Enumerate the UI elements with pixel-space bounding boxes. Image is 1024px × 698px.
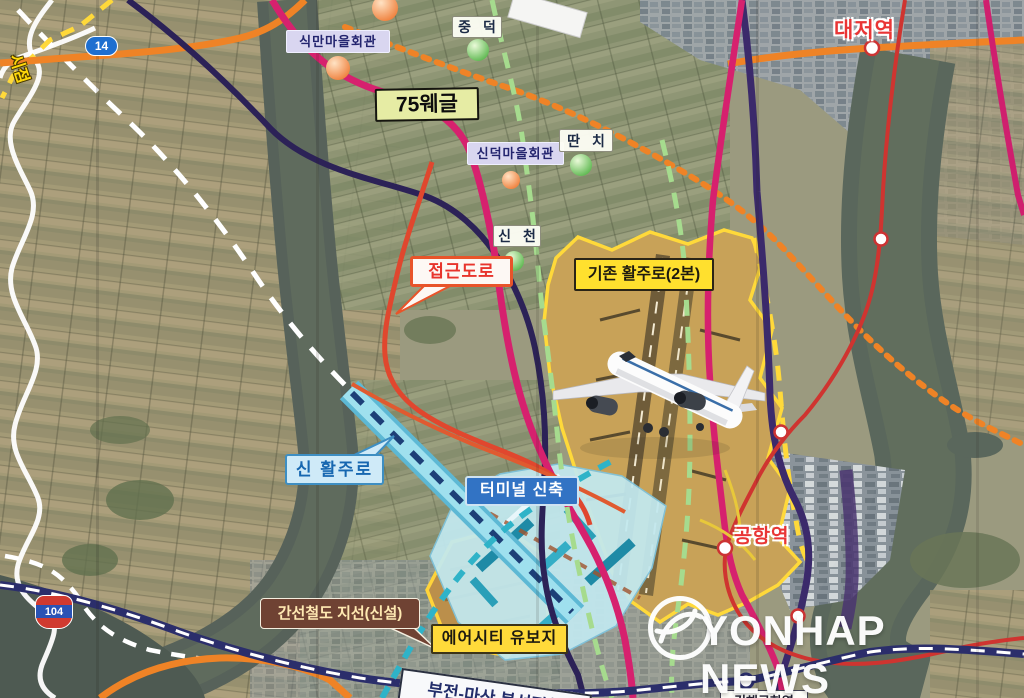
label-airport-station: 공항역: [734, 524, 789, 548]
sikman-hall-marker: [326, 56, 350, 80]
route-shield-104: 104: [35, 595, 73, 629]
sindeok-hall-marker: [502, 171, 520, 189]
jungdeok-marker: [467, 39, 489, 61]
label-access-road: 접근도로: [410, 256, 513, 287]
label-sincheon: 신 천: [493, 225, 541, 247]
map-photo: 식만마을회관 중 덕 75웨글 신덕마을회관 딴 치 대저역 신 천 접근도로 …: [0, 0, 1024, 698]
station-marker: [775, 426, 788, 439]
route-shield-104-number: 104: [36, 605, 72, 618]
label-aircity-reserve: 에어시티 유보지: [431, 624, 568, 654]
daejeo-station-marker: [865, 41, 879, 55]
airport-station-marker: [718, 541, 732, 555]
label-sindeok-hall: 신덕마을회관: [467, 142, 564, 165]
label-new-runway: 신 활주로: [285, 454, 384, 485]
label-ttanchi: 딴 치: [559, 129, 613, 152]
satellite-map-art: [0, 0, 1024, 698]
watermark-text: YONHAP NEWS: [700, 607, 1024, 698]
label-jungdeok: 중 덕: [452, 16, 502, 38]
label-rail-branch: 간선철도 지선(신설): [260, 598, 420, 629]
label-area-75: 75웨글: [375, 87, 480, 122]
station-marker: [875, 233, 888, 246]
route-shield-14: 14: [85, 36, 118, 56]
pond: [947, 432, 1003, 458]
ttanchi-marker: [570, 154, 592, 176]
purple-wide-road: [845, 470, 852, 628]
label-new-terminal: 터미널 신축: [465, 476, 579, 506]
label-sikman-hall: 식만마을회관: [286, 30, 390, 53]
label-existing-runway: 기존 활주로(2본): [574, 258, 714, 291]
label-daejeo-station: 대저역: [834, 17, 895, 43]
